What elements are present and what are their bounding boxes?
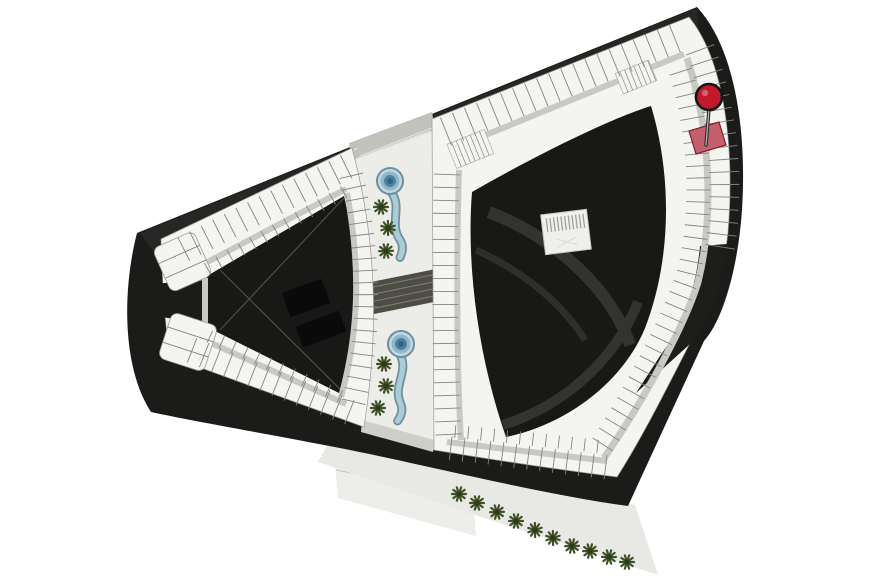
courtyard-pavilion [541,209,592,254]
floorplan-stage [0,0,883,576]
building-right[interactable] [432,17,739,479]
site-plan-canvas [0,0,883,576]
